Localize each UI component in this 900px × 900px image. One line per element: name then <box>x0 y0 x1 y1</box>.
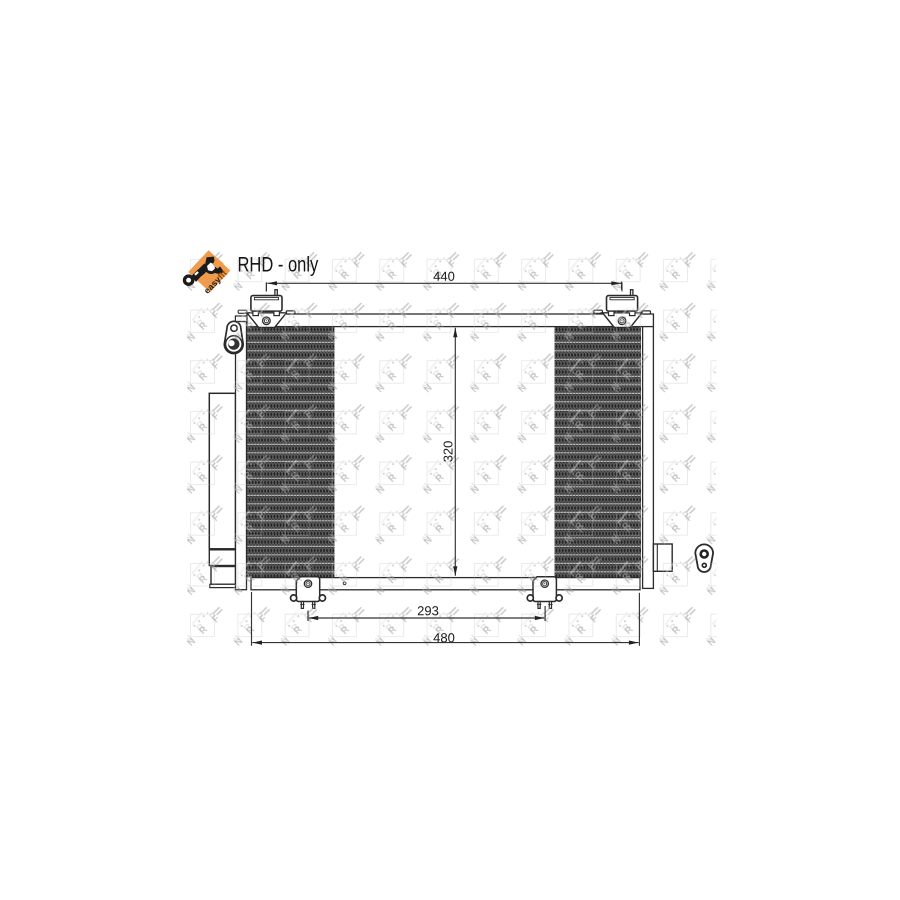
svg-text:440: 440 <box>433 269 455 284</box>
svg-text:480: 480 <box>433 630 455 645</box>
svg-text:RHD - only: RHD - only <box>238 254 319 277</box>
svg-text:320: 320 <box>440 441 455 463</box>
svg-text:293: 293 <box>417 603 439 618</box>
